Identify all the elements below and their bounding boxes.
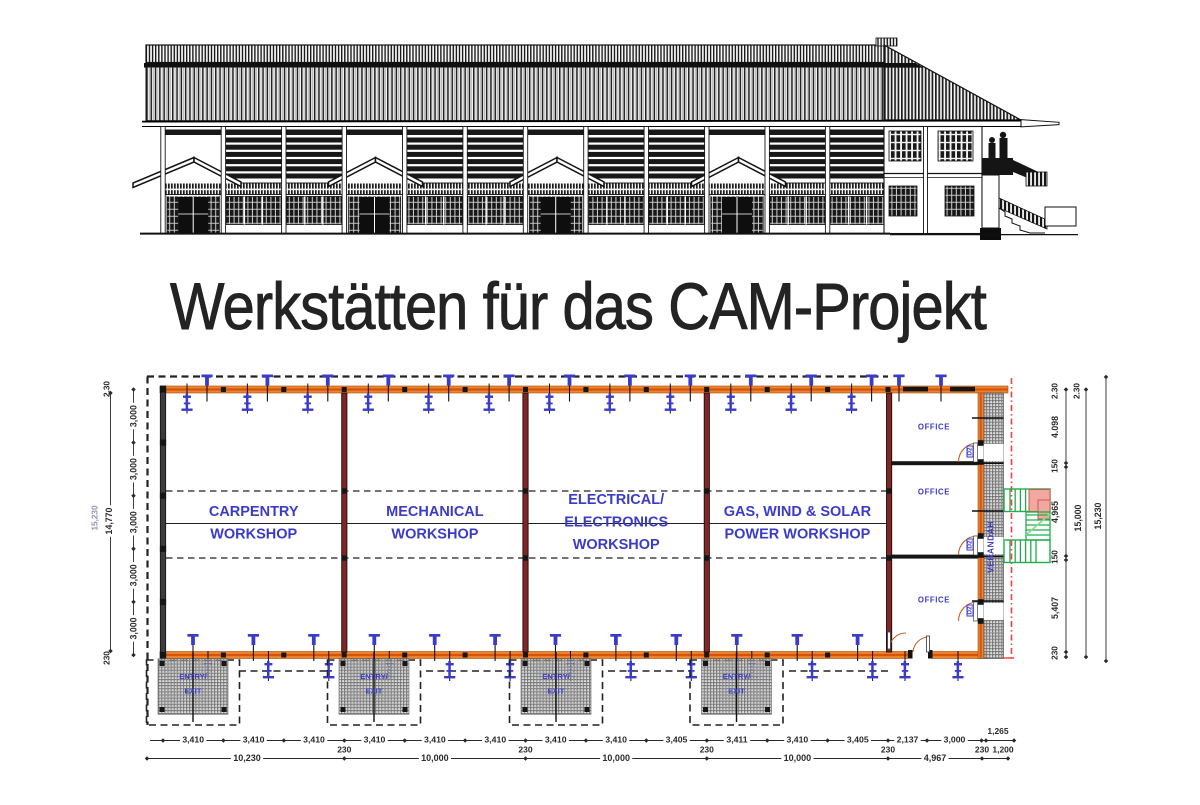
svg-text:WORKSHOP: WORKSHOP xyxy=(391,527,478,543)
svg-text:5,407: 5,407 xyxy=(1050,597,1060,619)
svg-text:3,410: 3,410 xyxy=(303,735,325,745)
svg-text:2.30: 2.30 xyxy=(1051,383,1060,399)
svg-text:10,000: 10,000 xyxy=(602,753,630,763)
svg-text:230: 230 xyxy=(975,745,989,755)
svg-text:ENTRY/: ENTRY/ xyxy=(542,672,570,681)
svg-text:OFFICE: OFFICE xyxy=(918,596,950,605)
svg-text:D2: D2 xyxy=(967,540,974,549)
svg-text:2.30: 2.30 xyxy=(103,381,112,397)
svg-text:1,265: 1,265 xyxy=(987,726,1009,736)
svg-text:WORKSHOP: WORKSHOP xyxy=(573,537,660,553)
svg-text:3,410: 3,410 xyxy=(484,735,506,745)
svg-text:10,230: 10,230 xyxy=(233,753,261,763)
svg-text:10,000: 10,000 xyxy=(421,753,449,763)
svg-text:230: 230 xyxy=(1051,646,1060,660)
svg-text:4.098: 4.098 xyxy=(1050,416,1060,438)
svg-text:D2: D2 xyxy=(967,606,974,615)
svg-text:2.30: 2.30 xyxy=(1073,383,1082,399)
svg-text:15,000: 15,000 xyxy=(1073,504,1083,531)
svg-text:3,411: 3,411 xyxy=(726,735,747,745)
svg-text:EXIT: EXIT xyxy=(366,687,383,696)
svg-text:ELECTRONICS: ELECTRONICS xyxy=(564,515,668,531)
svg-text:4,967: 4,967 xyxy=(924,753,947,763)
svg-text:230: 230 xyxy=(518,745,532,755)
svg-text:EXIT: EXIT xyxy=(728,687,745,696)
svg-text:3,000: 3,000 xyxy=(129,564,139,586)
svg-text:3,410: 3,410 xyxy=(364,735,386,745)
svg-text:150: 150 xyxy=(1051,459,1060,473)
svg-text:4,965: 4,965 xyxy=(1050,501,1060,523)
svg-text:230: 230 xyxy=(881,745,895,755)
svg-text:3,410: 3,410 xyxy=(787,735,809,745)
svg-text:230: 230 xyxy=(337,745,351,755)
svg-text:3,410: 3,410 xyxy=(243,735,265,745)
svg-text:EXIT: EXIT xyxy=(548,687,565,696)
svg-text:14,770: 14,770 xyxy=(104,507,114,534)
svg-text:2,137: 2,137 xyxy=(897,735,919,745)
svg-text:CARPENTRY: CARPENTRY xyxy=(209,504,299,520)
svg-text:ENTRY/: ENTRY/ xyxy=(723,672,751,681)
svg-text:10,000: 10,000 xyxy=(784,753,812,763)
svg-text:ELECTRICAL/: ELECTRICAL/ xyxy=(568,492,664,508)
svg-text:3,000: 3,000 xyxy=(129,458,139,480)
svg-text:3,000: 3,000 xyxy=(129,405,139,427)
svg-text:3,410: 3,410 xyxy=(424,735,446,745)
svg-text:WORKSHOP: WORKSHOP xyxy=(210,527,297,543)
svg-text:OFFICE: OFFICE xyxy=(918,423,950,432)
svg-text:GAS, WIND & SOLAR: GAS, WIND & SOLAR xyxy=(724,504,872,520)
svg-text:3,410: 3,410 xyxy=(182,735,204,745)
svg-text:3,405: 3,405 xyxy=(847,735,869,745)
svg-text:3,000: 3,000 xyxy=(129,511,139,533)
svg-text:3,000: 3,000 xyxy=(129,617,139,639)
svg-text:15,230: 15,230 xyxy=(91,505,100,530)
svg-text:15,230: 15,230 xyxy=(1093,502,1103,529)
svg-text:3,410: 3,410 xyxy=(605,735,627,745)
svg-text:3,405: 3,405 xyxy=(666,735,688,745)
svg-text:OFFICE: OFFICE xyxy=(918,488,950,497)
svg-text:150: 150 xyxy=(1051,550,1060,564)
svg-text:ENTRY/: ENTRY/ xyxy=(360,672,388,681)
svg-text:230: 230 xyxy=(103,651,112,665)
svg-text:POWER WORKSHOP: POWER WORKSHOP xyxy=(724,527,870,543)
svg-text:1,200: 1,200 xyxy=(992,745,1014,755)
svg-text:EXIT: EXIT xyxy=(185,687,202,696)
svg-text:3,410: 3,410 xyxy=(545,735,567,745)
svg-text:MECHANICAL: MECHANICAL xyxy=(386,504,484,520)
svg-text:D2: D2 xyxy=(967,447,974,456)
svg-text:ENTRY/: ENTRY/ xyxy=(179,672,207,681)
svg-text:VERANDAH: VERANDAH xyxy=(986,521,996,573)
svg-text:3,000: 3,000 xyxy=(944,735,966,745)
svg-text:230: 230 xyxy=(700,745,714,755)
